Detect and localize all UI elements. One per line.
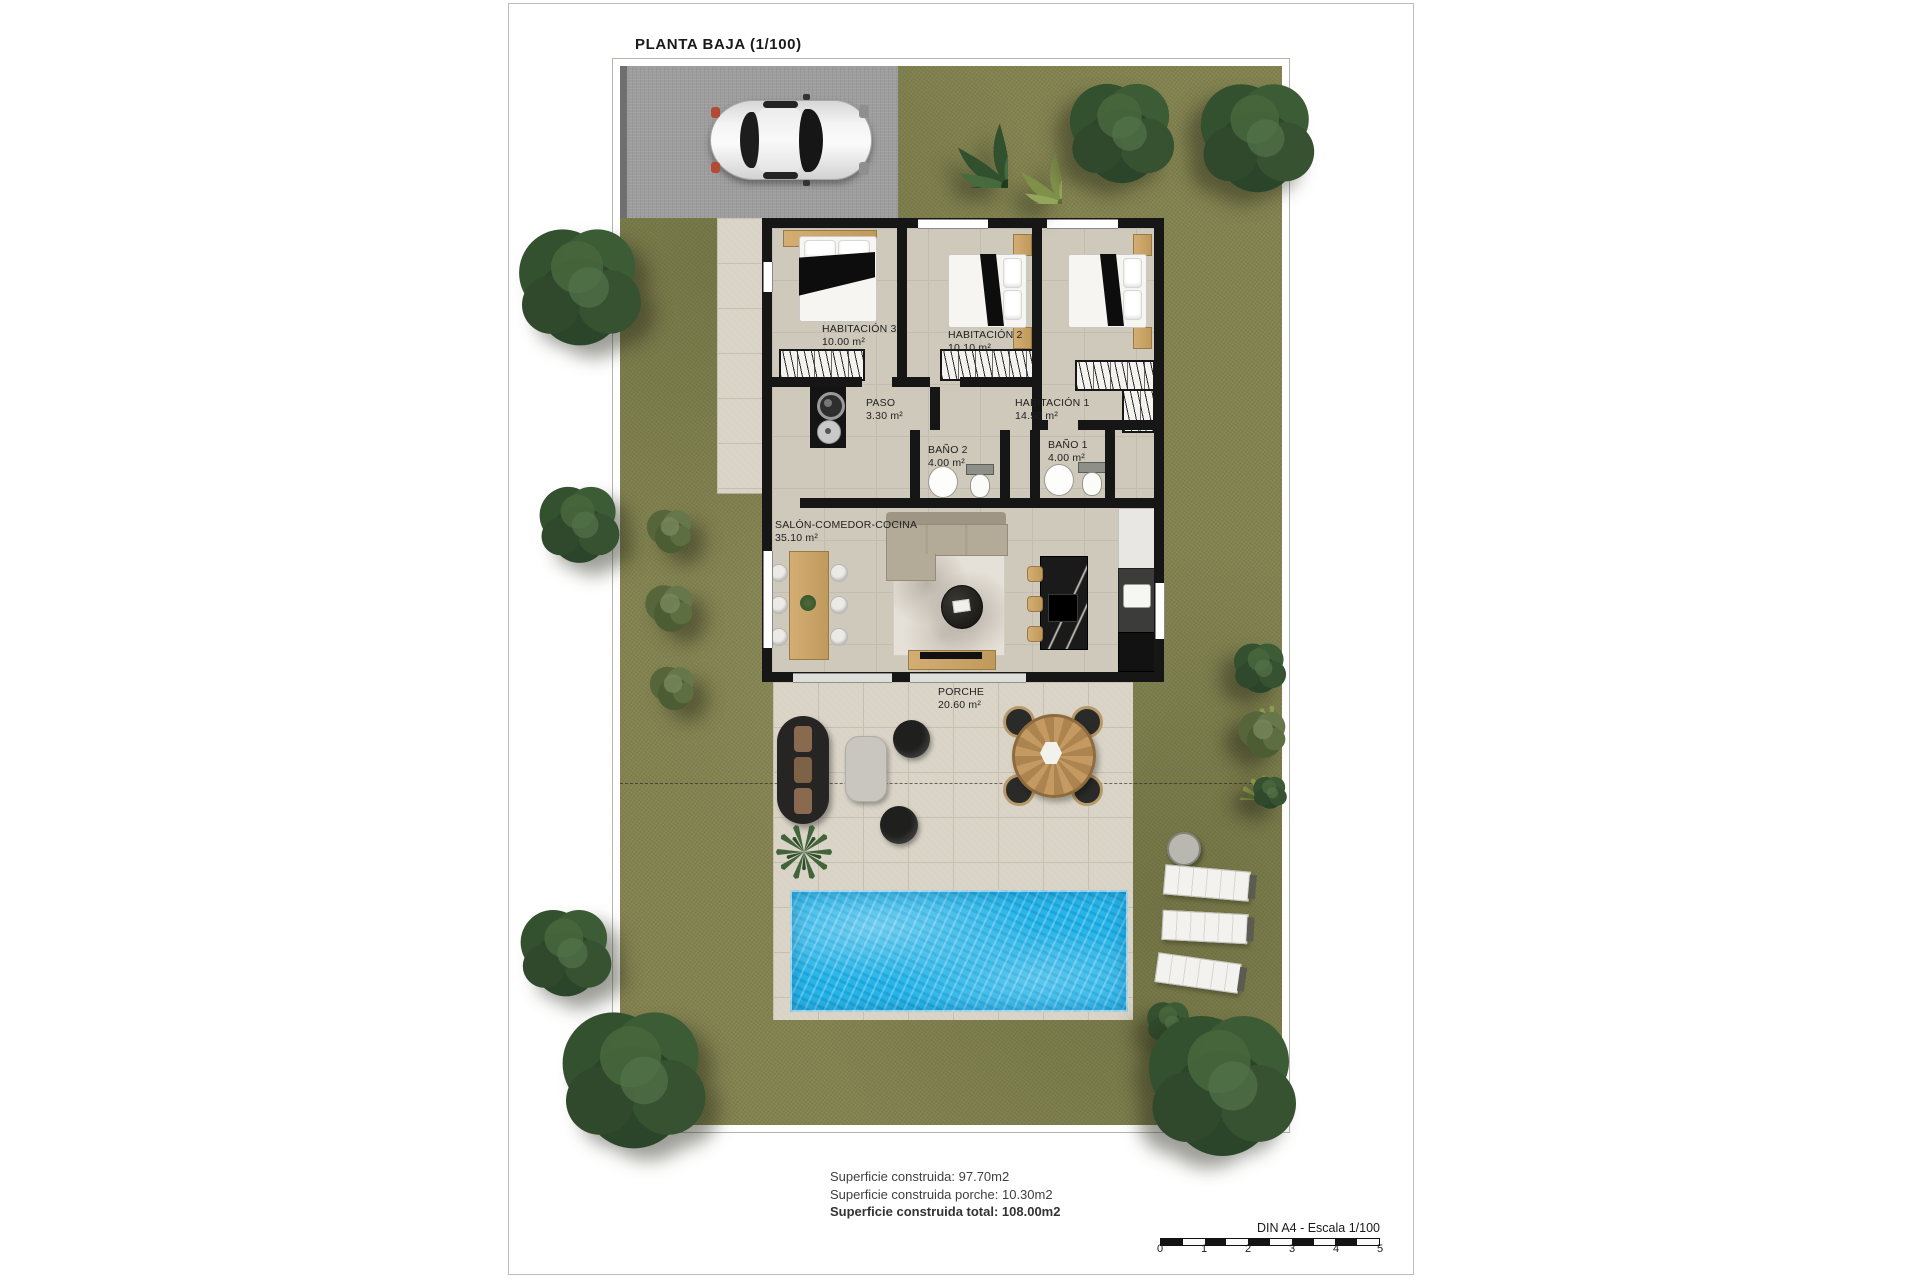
scalebar-tick-1: 1 [1201, 1243, 1207, 1255]
wall-bedrooms-bottom-c [960, 377, 1042, 387]
sliding-door-right [910, 673, 1026, 683]
room-area-bano1: 4.00 m² [1048, 452, 1088, 465]
outdoor-sofa-cushion-2 [794, 757, 812, 783]
wall-bano2-right [1000, 430, 1010, 498]
outdoor-pouf-2 [880, 806, 918, 844]
kitchen-counter-top [1118, 508, 1156, 570]
big-tree-bottom-left [548, 992, 720, 1162]
room-name-hab3: HABITACIÓN 3 [822, 323, 897, 336]
pool [790, 890, 1128, 1012]
bano2-toilet-bowl [970, 474, 990, 498]
summary-porche: Superficie construida porche: 10.30m2 [830, 1186, 1060, 1204]
room-name-hab2: HABITACIÓN 2 [948, 329, 1023, 342]
laundry-basin-drain [825, 428, 831, 434]
wall-hab3-hab2 [897, 228, 907, 377]
wall-bedrooms-bottom-b [892, 377, 930, 387]
olive-bush-1 [641, 500, 699, 560]
room-area-porche: 20.60 m² [938, 699, 984, 712]
room-name-bano2: BAÑO 2 [928, 444, 968, 457]
room-area-paso: 3.30 m² [866, 410, 903, 423]
car-side-window-top [763, 101, 798, 107]
scalebar-label: DIN A4 - Escala 1/100 [1160, 1221, 1380, 1235]
room-area-bano2: 4.00 m² [928, 457, 968, 470]
outdoor-pouf-1 [893, 720, 930, 758]
outdoor-sofa-cushion-3 [794, 788, 812, 814]
olive-bush-2 [639, 572, 701, 642]
room-area-hab3: 10.00 m² [822, 336, 897, 349]
setback-dashed-line [620, 783, 1282, 784]
room-area-hab1: 14.50 m² [1015, 410, 1090, 423]
bed1-pillow-bottom [1123, 290, 1142, 320]
big-tree-bottom-right [1130, 995, 1315, 1170]
wardrobe-hab1 [1075, 360, 1155, 391]
room-label-hab2: HABITACIÓN 2 10.10 m² [948, 329, 1023, 355]
bano2-sink [928, 466, 958, 498]
tv [920, 652, 982, 659]
window-hab3 [763, 262, 773, 292]
car-headlight-top [859, 105, 869, 119]
room-name-bano1: BAÑO 1 [1048, 439, 1088, 452]
bed2-pillow-top [1003, 258, 1022, 288]
bed1-pillow-top [1123, 258, 1142, 288]
scalebar: DIN A4 - Escala 1/100 0 1 2 3 4 5 [1160, 1221, 1380, 1246]
summary-total: Superficie construida total: 108.00m2 [830, 1203, 1060, 1221]
scalebar-ticks: 0 1 2 3 4 5 [1160, 1243, 1380, 1257]
scalebar-tick-3: 3 [1289, 1243, 1295, 1255]
room-name-salon: SALÓN-COMEDOR-COCINA [775, 519, 917, 532]
scalebar-tick-5: 5 [1377, 1243, 1383, 1255]
nightstand-hab2-top [1013, 234, 1032, 256]
palm-tree-2 [952, 92, 1062, 204]
car-roof [758, 108, 801, 173]
window-living-left [763, 551, 773, 648]
room-label-bano1: BAÑO 1 4.00 m² [1048, 439, 1088, 465]
sliding-door-left [793, 673, 892, 683]
round-tree-top-a [1060, 52, 1184, 210]
wall-living-top [800, 498, 1164, 508]
dining-chair-4 [830, 564, 848, 582]
nightstand-hab1-bottom [1133, 327, 1152, 349]
garden-side-table [1167, 832, 1201, 866]
wall-bano1-right [1105, 430, 1115, 498]
room-name-paso: PASO [866, 397, 903, 410]
window-hab2 [918, 219, 988, 229]
driveway-edge [620, 66, 627, 218]
right-small-bush [1248, 772, 1292, 812]
wall-bano2-left [910, 430, 920, 498]
island-stool-2 [1027, 596, 1043, 612]
pine-tree-top-left [505, 212, 655, 357]
room-label-paso: PASO 3.30 m² [866, 397, 903, 423]
car-taillight-bottom [711, 162, 719, 174]
room-label-porche: PORCHE 20.60 m² [938, 686, 984, 712]
car-mirror-top [803, 94, 810, 100]
car-rear-window [740, 112, 760, 168]
wall-bedrooms-bottom-a [762, 377, 862, 387]
island-stool-1 [1027, 566, 1043, 582]
room-area-hab2: 10.10 m² [948, 342, 1023, 355]
coffee-table-book [952, 599, 971, 613]
scalebar-tick-0: 0 [1157, 1243, 1163, 1255]
window-kitchen [1155, 583, 1165, 639]
plan-title: PLANTA BAJA (1/100) [635, 36, 802, 53]
dining-table-plant [800, 595, 816, 611]
washer-icon [817, 392, 845, 420]
outdoor-sofa-cushion-1 [794, 726, 812, 752]
island-cooktop [1048, 594, 1078, 622]
island-stool-3 [1027, 626, 1043, 642]
outdoor-side-table [845, 736, 887, 802]
room-label-salon: SALÓN-COMEDOR-COCINA 35.10 m² [775, 519, 917, 545]
porch-plant [772, 822, 836, 882]
car-side-window-bottom [763, 172, 798, 178]
kitchen-sink [1123, 584, 1151, 608]
kitchen-appliance [1118, 632, 1156, 672]
scalebar-tick-4: 4 [1333, 1243, 1339, 1255]
floor-plan-page: PLANTA BAJA (1/100) [0, 0, 1920, 1280]
dining-chair-5 [830, 596, 848, 614]
car-windshield [799, 109, 822, 172]
wall-bano1-left [1030, 430, 1040, 498]
window-hab1 [1047, 219, 1118, 229]
car-mirror-bottom [803, 180, 810, 186]
room-area-salon: 35.10 m² [775, 532, 917, 545]
bano1-sink [1044, 464, 1074, 496]
nightstand-hab1-top [1133, 234, 1152, 256]
round-tree-top-b [1190, 38, 1325, 233]
washer-door-dot [824, 399, 832, 407]
car-top-view [708, 95, 874, 185]
wall-paso-hab1 [930, 387, 940, 430]
dining-chair-6 [830, 628, 848, 646]
room-label-hab3: HABITACIÓN 3 10.00 m² [822, 323, 897, 349]
room-label-bano2: BAÑO 2 4.00 m² [928, 444, 968, 470]
room-name-porche: PORCHE [938, 686, 984, 699]
bush-mid-left [532, 468, 627, 578]
wall-hab1-bottom-b [1078, 420, 1164, 430]
car-taillight-top [711, 107, 719, 119]
sofa-chaise [886, 554, 936, 581]
laundry-closet [810, 386, 846, 448]
summary-block: Superficie construida: 97.70m2 Superfici… [830, 1168, 1060, 1221]
car-headlight-bottom [859, 162, 869, 176]
scalebar-tick-2: 2 [1245, 1243, 1251, 1255]
entry-walkway [717, 218, 763, 494]
bed2-pillow-bottom [1003, 290, 1022, 320]
sun-lounger-2 [1161, 910, 1248, 944]
bano1-toilet-bowl [1082, 472, 1102, 496]
summary-construida: Superficie construida: 97.70m2 [830, 1168, 1060, 1186]
room-label-hab1: HABITACIÓN 1 14.50 m² [1015, 397, 1090, 423]
olive-bush-3 [644, 652, 702, 722]
room-name-hab1: HABITACIÓN 1 [1015, 397, 1090, 410]
